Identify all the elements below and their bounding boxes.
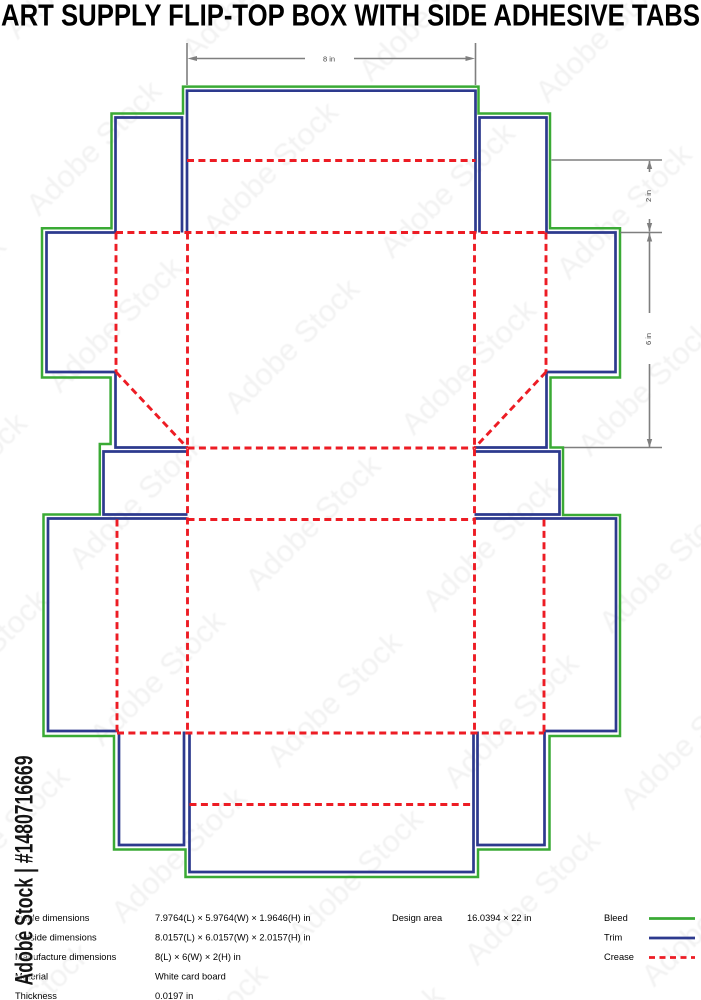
- svg-text:0.0197 in: 0.0197 in: [155, 991, 193, 1000]
- svg-text:6 in: 6 in: [644, 333, 653, 345]
- svg-text:Bleed: Bleed: [604, 913, 628, 923]
- svg-text:2 in: 2 in: [644, 190, 653, 202]
- svg-text:Adobe Stock: Adobe Stock: [19, 73, 168, 222]
- svg-text:Adobe Stock: Adobe Stock: [613, 667, 701, 816]
- svg-text:Adobe Stock | #1480716669: Adobe Stock | #1480716669: [11, 756, 39, 986]
- svg-text:Adobe Stock: Adobe Stock: [592, 490, 701, 639]
- svg-text:Adobe Stock: Adobe Stock: [196, 94, 345, 243]
- svg-text:Adobe Stock: Adobe Stock: [217, 271, 366, 420]
- svg-text:Adobe Stock: Adobe Stock: [549, 136, 698, 285]
- svg-text:16.0394 × 22 in: 16.0394 × 22 in: [467, 913, 531, 923]
- svg-text:Adobe Stock: Adobe Stock: [571, 313, 701, 462]
- svg-text:8(L) × 6(W) × 2(H) in: 8(L) × 6(W) × 2(H) in: [155, 952, 241, 962]
- svg-text:Adobe Stock: Adobe Stock: [104, 780, 253, 929]
- svg-text:Adobe Stock: Adobe Stock: [415, 469, 564, 618]
- svg-text:Adobe Stock: Adobe Stock: [238, 447, 387, 596]
- svg-text:Adobe Stock: Adobe Stock: [394, 292, 543, 441]
- svg-text:Adobe Stock: Adobe Stock: [281, 801, 430, 950]
- svg-text:White card board: White card board: [155, 972, 226, 982]
- svg-text:Crease: Crease: [604, 952, 634, 962]
- svg-text:Adobe Stock: Adobe Stock: [302, 978, 451, 1000]
- svg-text:8.0157(L) × 6.0157(W) × 2.0157: 8.0157(L) × 6.0157(W) × 2.0157(H) in: [155, 933, 311, 943]
- svg-text:Adobe Stock: Adobe Stock: [373, 115, 522, 264]
- svg-text:ART SUPPLY FLIP-TOP BOX WITH S: ART SUPPLY FLIP-TOP BOX WITH SIDE ADHESI…: [1, 0, 700, 33]
- svg-text:Design area: Design area: [392, 913, 443, 923]
- svg-text:Thickness: Thickness: [15, 991, 57, 1000]
- svg-text:7.9764(L) × 5.9764(W) × 1.9646: 7.9764(L) × 5.9764(W) × 1.9646(H) in: [155, 913, 311, 923]
- svg-text:8 in: 8 in: [323, 55, 335, 64]
- svg-text:Adobe Stock: Adobe Stock: [436, 645, 585, 794]
- svg-text:Adobe Stock: Adobe Stock: [0, 405, 34, 554]
- svg-text:Trim: Trim: [604, 933, 622, 943]
- svg-text:Adobe Stock: Adobe Stock: [259, 624, 408, 773]
- svg-text:Adobe Stock: Adobe Stock: [0, 228, 13, 377]
